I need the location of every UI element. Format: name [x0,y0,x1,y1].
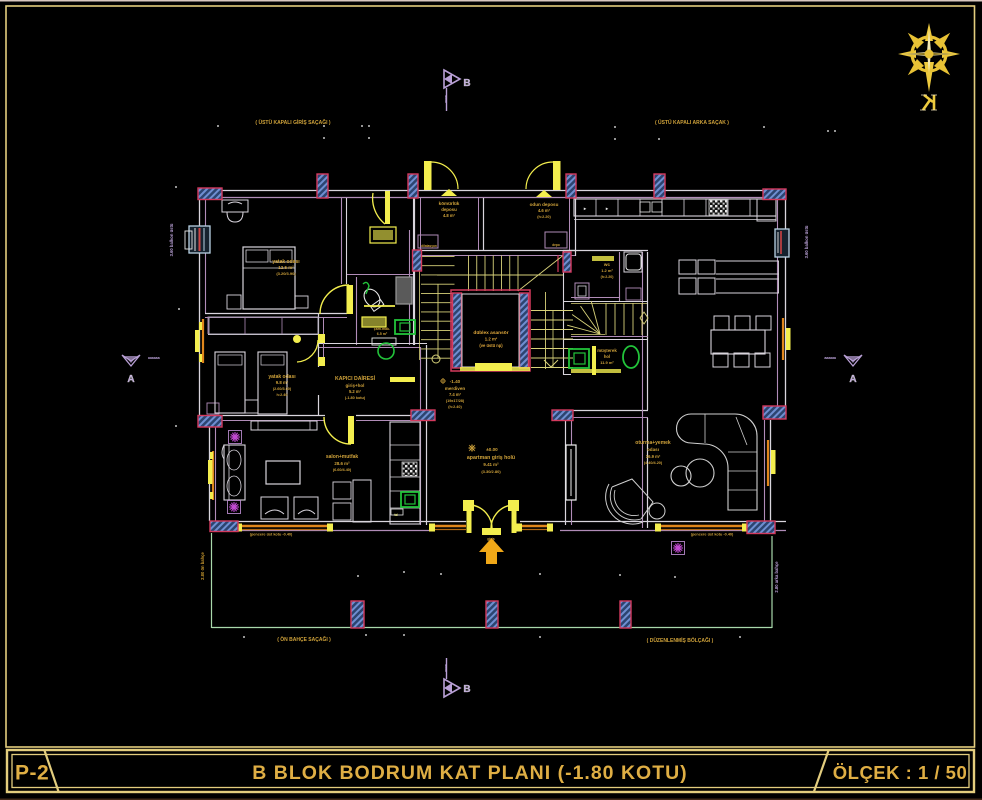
svg-text:aaaa: aaaa [444,664,448,672]
svg-text:aaaa: aaaa [444,95,448,103]
svg-text:merdiven: merdiven [445,386,466,391]
svg-text:apartman giriş holü: apartman giriş holü [467,455,515,461]
svg-text:3.60 balkon üstü: 3.60 balkon üstü [804,225,809,258]
svg-text:deposu: deposu [441,207,457,212]
svg-text:çam.mak.: çam.mak. [374,327,390,331]
svg-text:hol: hol [604,354,610,359]
svg-text:7.4 m²: 7.4 m² [449,392,462,397]
svg-text:( ÖN BAHÇE SAÇAĞI ): ( ÖN BAHÇE SAÇAĞI ) [277,635,331,643]
svg-text:16.9 m²: 16.9 m² [646,454,661,459]
svg-text:depo: depo [552,243,560,247]
svg-text:P-2: P-2 [15,762,49,785]
svg-text:B BLOK BODRUM KAT PLANI (: B BLOK BODRUM KAT PLANI (-1.80 KOTU) [252,762,687,784]
svg-text:(2.60/3.60): (2.60/3.60) [273,387,292,391]
svg-text:aaaaaa: aaaaaa [824,356,836,360]
svg-text:odası: odası [647,447,659,452]
svg-text:(pencere üst kotu -0.40): (pencere üst kotu -0.40) [250,533,293,537]
svg-text:(ve üstü np): (ve üstü np) [479,343,503,348]
svg-text:giriş+hol: giriş+hol [346,383,365,388]
svg-text:odun deposu: odun deposu [530,202,559,207]
svg-text:h:2.40: h:2.40 [277,393,288,397]
svg-text:9.41 m²: 9.41 m² [483,462,499,467]
svg-text:2.80 arka bahçe: 2.80 arka bahçe [774,561,779,593]
svg-text:3.60 balkon üstü: 3.60 balkon üstü [169,223,174,256]
svg-text:(h:2.20): (h:2.20) [601,275,615,279]
svg-text:dilatasyon: dilatasyon [421,244,437,248]
svg-text:(h:2.20): (h:2.20) [537,215,551,219]
svg-text:(3.20/3.90): (3.20/3.90) [276,271,296,276]
svg-text:(-1.80 kotu): (-1.80 kotu) [345,396,366,400]
svg-text:( ÜSTÜ KAPALI ARKA SAÇAK ): ( ÜSTÜ KAPALI ARKA SAÇAK ) [655,119,729,126]
svg-text:KAPICI DAİRESİ: KAPICI DAİRESİ [335,375,376,382]
svg-text:wc: wc [603,262,611,267]
svg-text:1.2 m²: 1.2 m² [601,268,613,273]
svg-text:6.5 m²: 6.5 m² [377,332,388,336]
svg-text:28.6 m²: 28.6 m² [334,461,350,466]
svg-text:(h:2.40): (h:2.40) [448,405,462,409]
svg-text:A: A [849,374,856,385]
svg-text:-1.40: -1.40 [450,379,461,384]
svg-text:11.9 m²: 11.9 m² [600,360,614,365]
svg-text:9.8 m²: 9.8 m² [276,380,289,385]
svg-text:(3.30/2.80): (3.30/2.80) [481,469,501,474]
svg-text:aaaaaa: aaaaaa [148,356,160,360]
svg-text:4.6 m²: 4.6 m² [538,208,551,213]
svg-text:müşterek: müşterek [597,348,617,353]
svg-text:B: B [463,684,470,695]
svg-text:(6.60/4.40): (6.60/4.40) [333,468,352,472]
svg-text:1.2 m²: 1.2 m² [485,337,498,342]
svg-text:(pencere üst kotu -0.40): (pencere üst kotu -0.40) [691,533,734,537]
svg-text:(4.40/4.20): (4.40/4.20) [644,461,663,465]
svg-text:ÖLÇEK : 1 / 50: ÖLÇEK : 1 / 50 [833,762,967,783]
svg-text:( DÜZENLENMİŞ BÖLÇAĞI ): ( DÜZENLENMİŞ BÖLÇAĞI ) [647,636,714,644]
svg-text:oturma+yemek: oturma+yemek [635,440,671,446]
svg-text:A: A [127,374,134,385]
svg-text:5.2 m²: 5.2 m² [349,389,362,394]
svg-text:salon+mutfak: salon+mutfak [326,454,359,460]
svg-text:±0.00: ±0.00 [486,447,498,452]
svg-text:B: B [463,78,470,89]
svg-text:2.80 ön bahçe: 2.80 ön bahçe [200,551,205,579]
svg-text:(19x17/28): (19x17/28) [446,399,465,403]
svg-text:12.5 m²: 12.5 m² [278,265,294,270]
svg-text:( ÜSTÜ KAPALI GİRİŞ SAÇAĞI ): ( ÜSTÜ KAPALI GİRİŞ SAÇAĞI ) [255,118,331,126]
svg-text:kömürlük: kömürlük [439,201,460,206]
svg-text:4.8 m²: 4.8 m² [443,213,456,218]
svg-text:düblex asansör: düblex asansör [473,330,508,336]
